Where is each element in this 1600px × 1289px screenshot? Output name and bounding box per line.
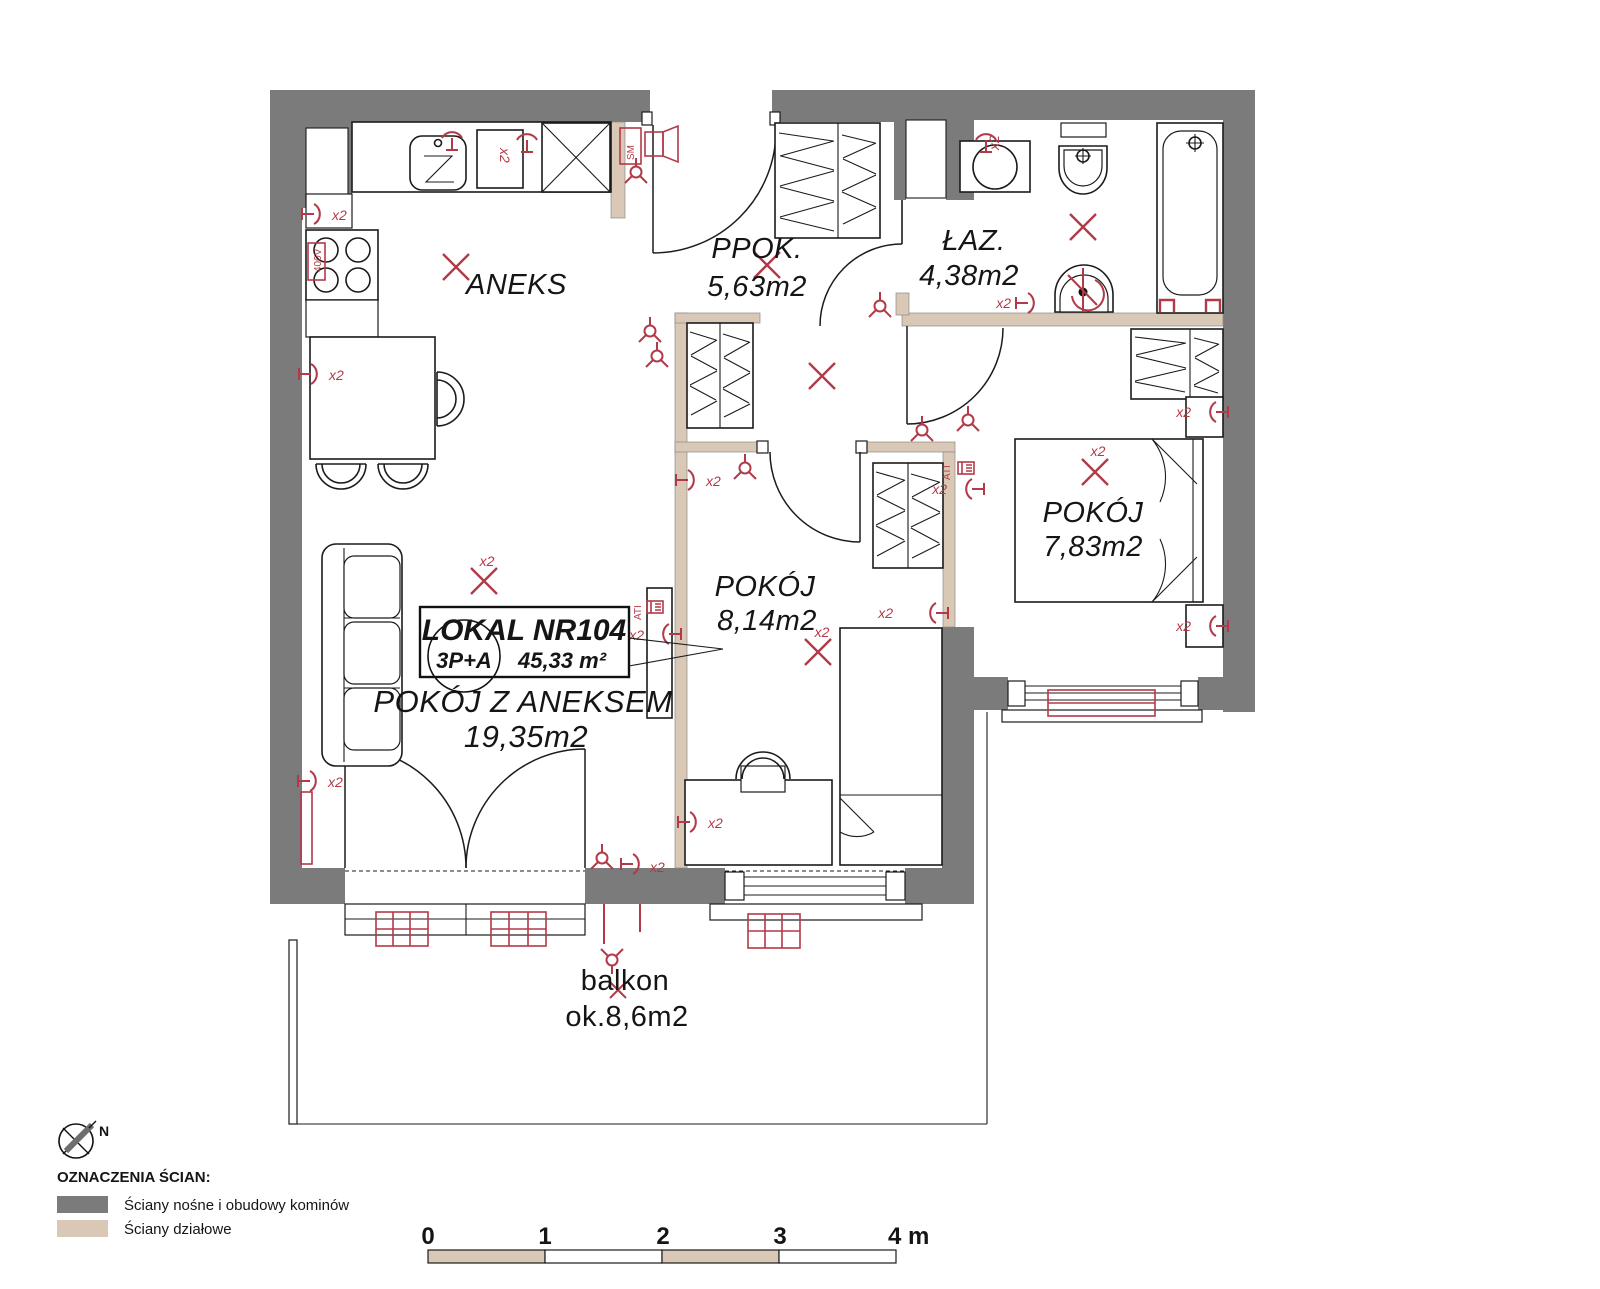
socket-icon [966, 479, 984, 499]
chair [316, 464, 366, 489]
floor-plan: x2 x2 x2 x2 x2 x2 x2 x2 x2 x2 x2 x2 x2 x… [0, 0, 1600, 1289]
bathroom-door [820, 244, 902, 326]
x2-label: x2 [705, 473, 721, 489]
ati-label: ATI [633, 605, 644, 620]
room-783-door [907, 326, 1003, 424]
room-area-laz: 4,38m2 [919, 260, 1019, 292]
chimney-niche [906, 120, 946, 198]
chair [437, 372, 464, 426]
scale-seg-4 [779, 1250, 896, 1263]
wardrobe [1131, 329, 1223, 399]
x2-label: x2 [328, 367, 344, 383]
dining-table [310, 337, 435, 459]
wardrobe [687, 323, 753, 428]
scale-tick-3: 3 [773, 1223, 786, 1250]
scale-tick-2: 2 [656, 1223, 669, 1250]
north-arrow-icon: N [59, 1121, 109, 1158]
room-area-783: 7,83m2 [1043, 531, 1143, 563]
unit-name: LOKAL NR104 [422, 614, 627, 647]
chair [378, 464, 428, 489]
sm-label: SM [626, 145, 637, 160]
north-label: N [99, 1123, 109, 1139]
floor-plan-page: x2 x2 x2 x2 x2 x2 x2 x2 x2 x2 x2 x2 x2 x… [0, 0, 1600, 1289]
room-label-laz: ŁAZ. [942, 225, 1005, 257]
wall-lamp-icon [625, 158, 647, 183]
ceiling-light-icon [1070, 214, 1096, 240]
ceiling-light-icon [805, 639, 831, 665]
x2-label: x2 [649, 859, 665, 875]
x2-label: x2 [995, 295, 1011, 311]
scale-seg-3 [662, 1250, 779, 1263]
wall-lamp-icon [957, 406, 979, 431]
power-label: 400V [313, 248, 324, 272]
x2-label: x2 [479, 553, 495, 569]
room-area-ppok: 5,63m2 [707, 271, 807, 303]
x2-label: x2 [1175, 618, 1191, 634]
wall-lamp-icon [911, 416, 933, 441]
legend-swatch-partition [57, 1220, 108, 1237]
room-label-living: POKÓJ Z ANEKSEM [373, 684, 672, 719]
wall-lamp-icon [734, 454, 756, 479]
radiator [301, 792, 312, 864]
x2-label: x2 [1090, 443, 1106, 459]
room-label-balkon: balkon [581, 965, 669, 997]
legend-label-partition: Ściany działowe [124, 1220, 232, 1238]
bed-single [840, 628, 942, 865]
ceiling-light-icon [809, 363, 835, 389]
x2-label: x2 [931, 481, 947, 497]
wardrobe [873, 463, 943, 568]
door-frame [642, 112, 652, 125]
x2-label: x2 [707, 815, 723, 831]
door-frame [856, 441, 867, 453]
legend: N OZNACZENIA ŚCIAN: Ściany nośne i obudo… [57, 1121, 349, 1238]
ceiling-light-icon [471, 568, 497, 594]
legend-swatch-bearing [57, 1196, 108, 1213]
wall-lamp-icon [646, 342, 668, 367]
room-814-door [770, 452, 860, 542]
scale-bar: 0 1 2 3 4 m [421, 1223, 929, 1263]
door-frame [757, 441, 768, 453]
unit-layout: 3P+A [436, 648, 492, 673]
room-label-814: POKÓJ [715, 570, 816, 603]
room783-furniture [1015, 329, 1223, 647]
wardrobe [775, 123, 880, 238]
unit-area: 45,33 m² [517, 648, 607, 673]
x2-label: x2 [877, 605, 893, 621]
scale-tick-0: 0 [421, 1223, 434, 1250]
kitchen-furniture [306, 122, 611, 489]
tv-socket-icon [958, 462, 974, 474]
shaft-niche [306, 128, 348, 202]
nightstand [1186, 397, 1223, 437]
bathtub [1157, 123, 1223, 313]
washbasin [1059, 123, 1107, 194]
sofa [322, 544, 402, 766]
room-area-balkon: ok.8,6m2 [565, 1001, 688, 1033]
wall-lamp-icon [639, 317, 661, 342]
room-label-783: POKÓJ [1043, 496, 1144, 529]
legend-label-bearing: Ściany nośne i obudowy kominów [124, 1196, 349, 1214]
wall-lamp-icon [591, 844, 613, 869]
wall-lamp-icon [869, 292, 891, 317]
scale-seg-1 [428, 1250, 545, 1263]
ati-label: ATI [942, 465, 953, 480]
room-area-814: 8,14m2 [717, 605, 817, 637]
socket-icon [1016, 293, 1034, 313]
room-label-aneks: ANEKS [464, 269, 567, 301]
x2-label: x2 [497, 147, 513, 163]
room-area-living: 19,35m2 [464, 719, 588, 754]
x2-label: x2 [1175, 404, 1191, 420]
desk [685, 752, 832, 865]
x2-label: x2 [628, 627, 644, 643]
x2-label: x2 [327, 774, 343, 790]
balcony-rail [289, 940, 297, 1124]
scale-tick-4: 4 m [888, 1223, 929, 1250]
x2-label: x2 [986, 135, 1002, 151]
toilet [1055, 265, 1113, 312]
x2-label: x2 [331, 207, 347, 223]
scale-seg-2 [545, 1250, 662, 1263]
room-label-ppok: PPOK. [711, 233, 802, 265]
cabinet [306, 300, 378, 337]
scale-tick-1: 1 [538, 1223, 551, 1250]
legend-heading: OZNACZENIA ŚCIAN: [57, 1168, 211, 1186]
